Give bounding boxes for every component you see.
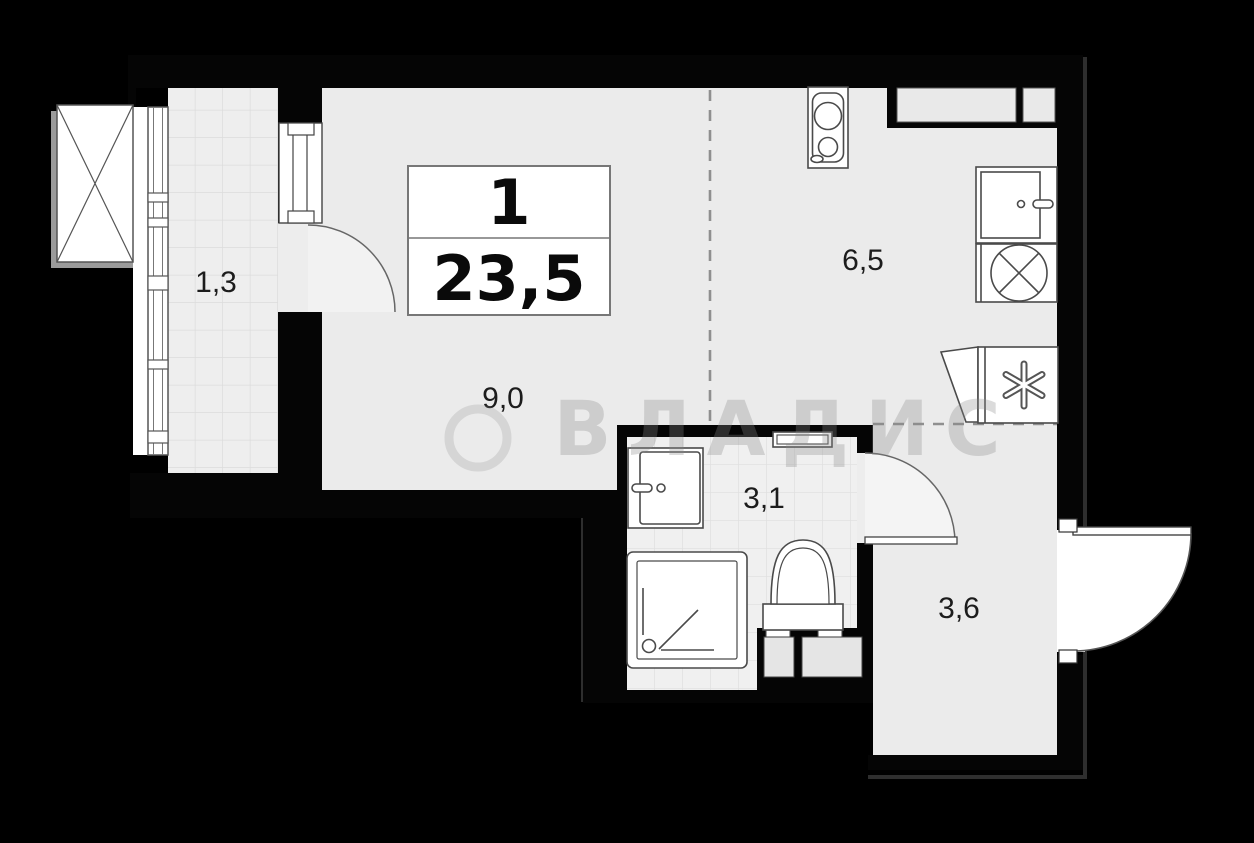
shaft-niche-1 [897, 88, 1016, 122]
wall-right-upper [1057, 55, 1083, 528]
shower-tray [627, 552, 747, 668]
stove [808, 87, 848, 168]
shaft-niche-2 [1023, 88, 1055, 122]
wall-bathroom-bottom [600, 690, 873, 703]
kitchen-area-label: 6,5 [842, 244, 884, 277]
ventilation-shaft [57, 105, 133, 262]
floor-plan-image: 1,3 9,0 6,5 3,1 3,6 1 23,5 ВЛАДИС [0, 0, 1254, 843]
bathroom-door-leaf [865, 537, 957, 544]
facade-strip [133, 107, 148, 455]
duct-niche-2 [802, 637, 862, 677]
kitchen-sink [976, 167, 1057, 243]
door-jamb-bottom [1059, 650, 1077, 663]
wall-right-lower [1057, 655, 1083, 770]
balcony-area-label: 1,3 [195, 266, 237, 299]
wall-hallway-bottom [868, 755, 1083, 770]
rooms-count: 1 [487, 166, 530, 239]
washing-machine [976, 244, 1057, 302]
duct-niche-1 [764, 637, 794, 677]
hallway-area-label: 3,6 [938, 592, 980, 625]
floor-plan-svg: 1,3 9,0 6,5 3,1 3,6 1 23,5 ВЛАДИС [0, 0, 1254, 843]
bathroom-area-label: 3,1 [743, 482, 785, 515]
wall-below-balcony [130, 473, 322, 518]
wall-bathroom-left-lower [583, 518, 627, 703]
total-area: 23,5 [433, 242, 586, 315]
wall-balcony-upper [278, 83, 322, 123]
entrance-door-leaf [1073, 527, 1191, 535]
wall-balcony-lower [278, 312, 322, 473]
wall-left-notch [128, 55, 136, 107]
title-block: 1 23,5 [408, 166, 610, 315]
watermark-text: ВЛАДИС [554, 384, 1017, 473]
wall-below-living [322, 490, 620, 518]
balcony-window-frame [279, 123, 322, 223]
door-jamb-top [1059, 519, 1077, 532]
